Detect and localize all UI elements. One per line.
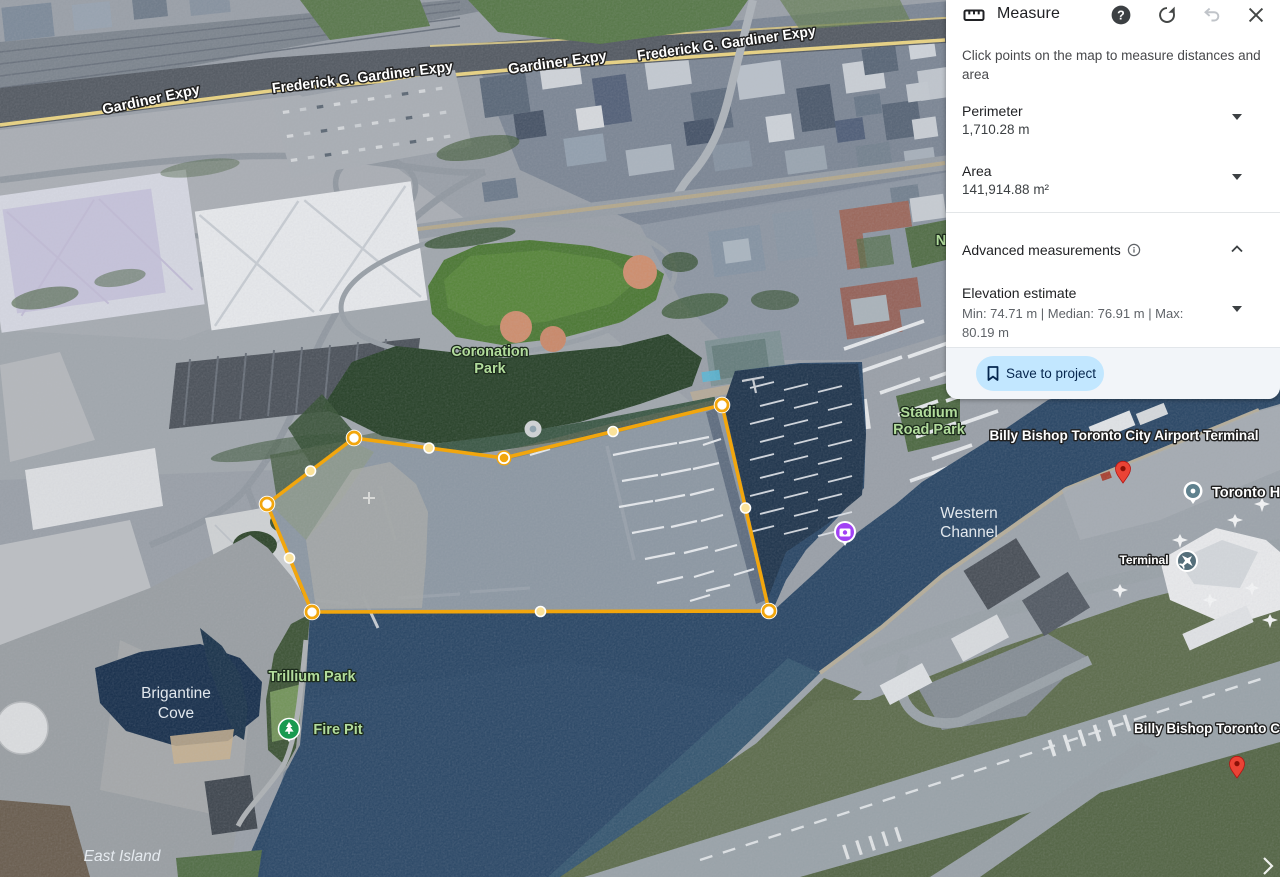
svg-text:Park: Park (474, 361, 506, 377)
svg-text:Billy Bishop Toronto C: Billy Bishop Toronto C (1134, 720, 1280, 736)
svg-text:N: N (936, 233, 946, 249)
svg-text:Trillium Park: Trillium Park (268, 669, 356, 685)
svg-text:Toronto He: Toronto He (1212, 485, 1280, 501)
svg-text:Road Park: Road Park (893, 422, 966, 438)
svg-text:Stadium: Stadium (900, 405, 957, 421)
svg-text:Coronation: Coronation (451, 344, 528, 360)
svg-text:?: ? (1117, 8, 1125, 22)
svg-text:Channel: Channel (940, 524, 998, 541)
svg-text:Cove: Cove (158, 705, 194, 722)
svg-text:East Island: East Island (84, 848, 162, 865)
svg-text:Billy Bishop Toronto City Airp: Billy Bishop Toronto City Airport Termin… (990, 427, 1259, 443)
svg-text:Brigantine: Brigantine (141, 685, 211, 702)
svg-text:Western: Western (940, 505, 997, 522)
svg-text:Terminal: Terminal (1119, 553, 1168, 567)
svg-text:Fire Pit: Fire Pit (313, 722, 362, 738)
